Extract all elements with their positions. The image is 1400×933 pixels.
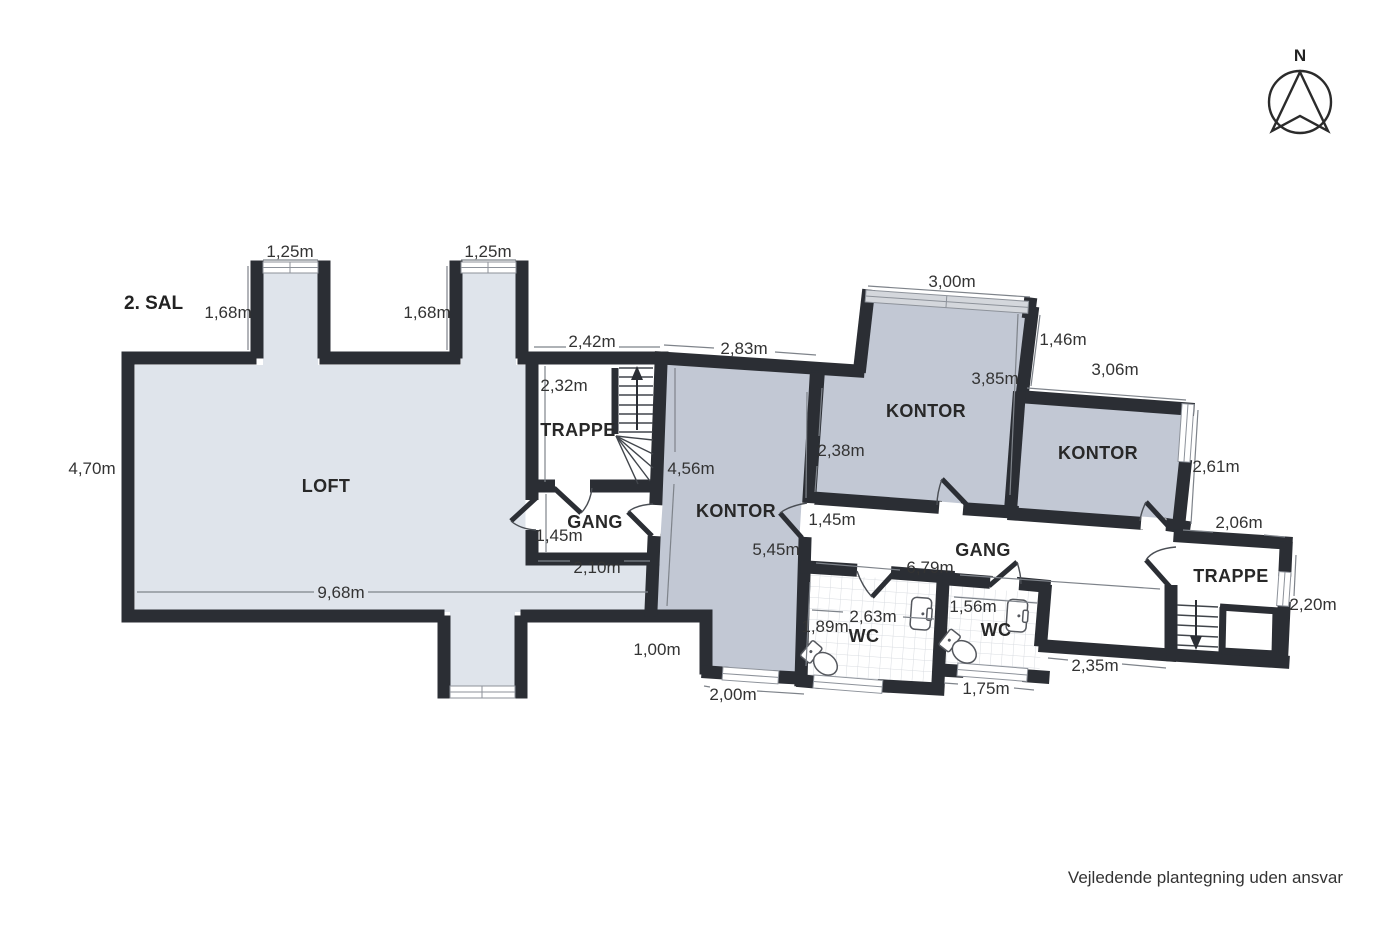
wall-kontor-mid-bottom-b <box>967 509 1012 512</box>
room-label-trappe-left: TRAPPE <box>540 420 615 440</box>
wall-kontor-left-east-a <box>809 379 816 498</box>
dim-jog-wall: 1,46m <box>1039 330 1086 349</box>
dim-dormer1-width: 1,25m <box>266 242 313 261</box>
wall-kontor-left-west-b <box>651 540 654 610</box>
dim-wc-right-window: 1,75m <box>962 679 1009 698</box>
dim-kontor-mid-left: 2,38m <box>817 441 864 460</box>
stairs-down-arrowhead <box>1190 636 1202 650</box>
floorplan-page: 2. SAL LOFT TRAPPE GANG KONTOR KONTOR KO… <box>0 0 1400 933</box>
wall-closet-right <box>1275 611 1276 654</box>
window-dormer1 <box>263 262 318 273</box>
wall-closet-left <box>1222 607 1223 652</box>
wall-trappe-right-east-b <box>1282 608 1284 650</box>
dim-gang-left-bottom: 2,10m <box>573 558 620 577</box>
window-extension <box>450 686 515 698</box>
dim-gang-left-width: 1,45m <box>535 526 582 545</box>
dim-wc-right-width: 1,56m <box>949 597 996 616</box>
wall-kontor-right-east <box>1179 466 1185 522</box>
compass-needle-icon <box>1272 72 1328 131</box>
window-dormer2 <box>461 262 516 273</box>
wall-wc-left-bottom-a <box>803 681 814 682</box>
dim-kontor-left-top: 2,83m <box>720 339 767 358</box>
dim-wc-left-width: 2,63m <box>849 607 896 626</box>
wall-wc-right-east <box>1041 591 1045 640</box>
dim-top-wall-left: 2,42m <box>568 332 615 351</box>
dim-kontor-mid-height: 3,85m <box>971 369 1018 388</box>
dim-dormer1-depth: 1,68m <box>204 303 251 322</box>
wall-wc-right-top-a <box>949 579 986 582</box>
wall-closet-top <box>1220 607 1279 611</box>
dim-trappe-right-top: 2,06m <box>1215 513 1262 532</box>
room-label-wc-left: WC <box>849 626 880 646</box>
floorplan-drawing: 2. SAL LOFT TRAPPE GANG KONTOR KONTOR KO… <box>0 0 1400 933</box>
compass-north-label: N <box>1294 46 1306 65</box>
sink-wc-left <box>910 597 933 630</box>
wall-kontor-right-bottom-a <box>1014 514 1137 523</box>
dim-wc-left-height: 1,89m <box>801 617 848 636</box>
dim-gang-right-length: 6,79m <box>906 558 953 577</box>
wall-kontor-left-bottom-a <box>708 672 723 673</box>
dim-loft-width: 9,68m <box>317 583 364 602</box>
loft-dormer1-floor <box>263 270 318 370</box>
wall-trappe-right-east-a <box>1285 548 1286 570</box>
wall-kontor-left-bottom-b <box>779 677 799 678</box>
wall-closet-bottom <box>1222 651 1276 654</box>
wall-jog <box>1023 313 1032 388</box>
wall-trappe-right-top <box>1180 536 1286 543</box>
wall-gang-right-bottom <box>1045 646 1170 655</box>
stairs-left <box>615 366 653 484</box>
loft-dormer2-floor <box>461 270 516 370</box>
wall-wc-right-bottom-a <box>940 670 957 671</box>
dim-kontor-left-height: 4,56m <box>667 459 714 478</box>
dim-loft-height: 4,70m <box>68 459 115 478</box>
dim-dormer2-width: 1,25m <box>464 242 511 261</box>
page-title: 2. SAL <box>124 293 184 314</box>
room-label-kontor-left: KONTOR <box>696 501 776 521</box>
dim-gang-right-door: 1,45m <box>808 510 855 529</box>
room-label-trappe-right: TRAPPE <box>1193 566 1268 586</box>
room-label-kontor-right: KONTOR <box>1058 443 1138 463</box>
wall-wc-left-top-a <box>807 567 853 570</box>
dim-kontor-right-side: 2,61m <box>1192 457 1239 476</box>
dim-kontor-left-window: 2,00m <box>709 685 756 704</box>
dim-kontor-mid-window: 3,00m <box>928 272 975 291</box>
wall-kontor-right-bottom-b <box>1170 525 1184 527</box>
dim-bottom-wall-right: 2,35m <box>1071 656 1118 675</box>
room-label-gang-right: GANG <box>955 540 1011 560</box>
dim-trappe-left-height: 2,32m <box>540 376 587 395</box>
wall-kontor-left-west-a <box>656 364 661 499</box>
compass: N <box>1269 46 1331 133</box>
stairs-right <box>1177 600 1218 650</box>
dim-step-height: 1,00m <box>633 640 680 659</box>
compass-circle <box>1269 71 1331 133</box>
room-label-wc-right: WC <box>981 620 1012 640</box>
loft-extension-floor <box>450 610 515 690</box>
room-label-kontor-mid: KONTOR <box>886 401 966 421</box>
wall-dormer-mid-left <box>860 296 868 366</box>
dim-trappe-right-side: 2,20m <box>1289 595 1336 614</box>
dim-dormer2-depth: 1,68m <box>403 303 450 322</box>
dim-kontor-right-top: 3,06m <box>1091 360 1138 379</box>
dim-kontor-left-full: 5,45m <box>752 540 799 559</box>
wall-wc-right-bottom-b <box>1029 676 1043 677</box>
disclaimer-text: Vejledende plantegning uden ansvar <box>1068 868 1343 887</box>
wall-kontor-mid-bottom-a <box>813 498 935 507</box>
room-label-loft: LOFT <box>302 476 351 496</box>
wall-wc-left-bottom-b <box>884 686 938 689</box>
